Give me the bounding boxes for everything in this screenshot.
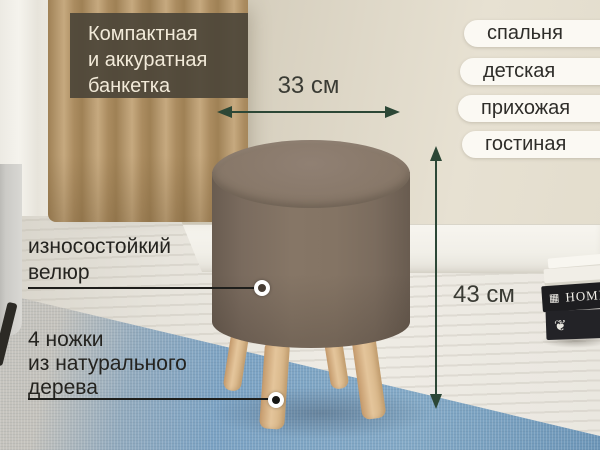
room-tag-label: спальня: [487, 22, 563, 45]
callout-velour-leader-line: [28, 287, 254, 289]
height-dimension-label: 43 см: [453, 281, 543, 309]
floral-ornament-icon: ❦: [554, 316, 567, 334]
callout-velour-text: износостойкий велюр: [28, 234, 171, 286]
badge-line-1: Компактная: [88, 21, 248, 47]
callout-velour-dot: [254, 280, 270, 296]
book-spine-floral: ❦: [546, 309, 600, 340]
room-tag-label: детская: [483, 60, 555, 83]
callout-legs-leader-line: [28, 398, 268, 400]
badge-line-2: и аккуратная: [88, 47, 248, 73]
room-tag-livingroom: гостиная: [462, 131, 600, 158]
room-tag-hallway: прихожая: [458, 95, 600, 122]
callout-legs-text: 4 ножки из натурального дерева: [28, 328, 187, 400]
callout-legs-line-1: 4 ножки: [28, 328, 187, 352]
room-tag-kids: детская: [460, 58, 600, 85]
callout-velour-line-2: велюр: [28, 260, 171, 286]
room-tag-label: прихожая: [481, 97, 570, 120]
callout-legs-line-2: из натурального: [28, 352, 187, 376]
room-tag-bedroom: спальня: [464, 20, 600, 47]
callout-legs-line-3: дерева: [28, 376, 187, 400]
height-arrow-icon: [435, 160, 437, 395]
stool-seat-top: [212, 140, 410, 208]
width-dimension-label: 33 см: [217, 72, 400, 100]
book-spine-home: ▦ HOME: [541, 282, 600, 313]
room-tag-label: гостиная: [485, 133, 566, 156]
callout-velour-line-1: износостойкий: [28, 234, 171, 260]
book-stamp-icon: ▦: [549, 293, 561, 305]
callout-legs-dot: [268, 392, 284, 408]
book-spine-title: HOME: [565, 287, 600, 306]
stool-shadow: [205, 386, 437, 440]
width-arrow-icon: [231, 111, 386, 113]
product-scene: ▦ HOME ❦ Компактная и аккуратная банкетк…: [0, 0, 600, 450]
